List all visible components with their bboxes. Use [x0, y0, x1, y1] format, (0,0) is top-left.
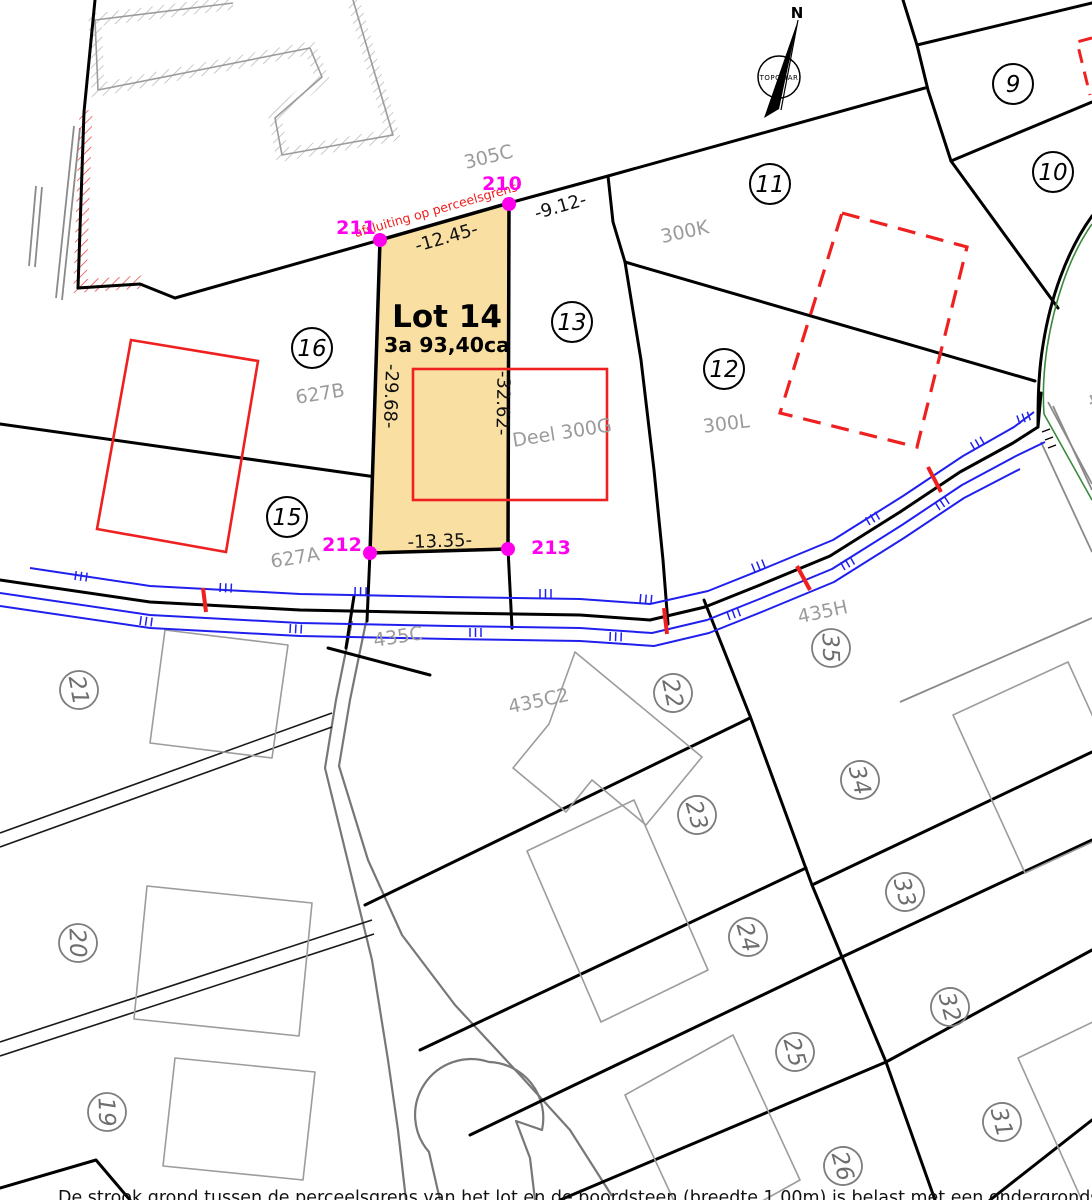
red-overlays	[97, 38, 1092, 552]
survey-point-212	[363, 546, 377, 560]
parcel-number: 20	[63, 928, 90, 958]
parcel-number: 12	[709, 357, 738, 383]
building-21	[150, 630, 288, 758]
parcel-9-10-boundary	[951, 102, 1092, 161]
parcel-35-34-boundary	[900, 618, 1092, 702]
building-34	[953, 662, 1092, 873]
lot-14: Lot 14 3a 93,40ca -12.45- -9.12- -29.68-…	[322, 173, 589, 560]
parcel-label-435c: 435C	[372, 622, 424, 651]
parcel-badge-32: 32	[927, 984, 974, 1031]
parcel-badge-9: 9	[993, 64, 1033, 104]
parcel-badge-13: 13	[552, 302, 592, 342]
parcel-badge-26: 26	[820, 1143, 867, 1190]
parcel-badge-10: 10	[1033, 152, 1073, 192]
survey-point-label-210: 210	[482, 173, 522, 195]
parcel-badge-21: 21	[57, 668, 101, 712]
parcel-badge-20: 20	[58, 923, 97, 962]
parcel-label-435h: 435H	[796, 596, 850, 628]
plan-svg: Lot 14 3a 93,40ca -12.45- -9.12- -29.68-…	[0, 0, 1092, 1200]
left-road-edge	[35, 187, 42, 267]
main-diagonal-boundary	[175, 88, 925, 298]
survey-point-label-211: 211	[336, 217, 376, 239]
parcel-badge-23: 23	[674, 792, 721, 839]
fence-ticks	[470, 628, 481, 637]
right-road-edge	[1041, 442, 1092, 552]
parcel-21-20-boundary	[0, 713, 332, 847]
parcel-number: 34	[843, 763, 876, 798]
fence-ticks	[140, 616, 152, 626]
parcel-badge-31: 31	[979, 1099, 1026, 1146]
culdesac-curve	[1038, 216, 1092, 427]
north-compass: N TOPOMAR	[758, 4, 803, 118]
parcel-number: 13	[557, 310, 586, 336]
parcel-label-300l: 300L	[702, 410, 752, 438]
parcel-badge-15: 15	[267, 497, 307, 537]
parcel-number: 15	[272, 505, 301, 531]
parcel-number: 16	[297, 336, 326, 362]
building-23	[527, 800, 708, 1022]
parcel-number: 25	[778, 1035, 811, 1070]
parcel-label-deel-300g: Deel 300G	[511, 414, 614, 451]
survey-point-label-212: 212	[322, 534, 362, 556]
parcel-badge-16: 16	[292, 328, 332, 368]
parcel-number: 10	[1038, 160, 1067, 186]
survey-point-label-213: 213	[531, 537, 571, 559]
lot-area: 3a 93,40ca	[384, 333, 510, 357]
red-rect-left	[97, 340, 258, 552]
culdesac-green-line	[1043, 224, 1092, 500]
parcel-boundaries	[0, 0, 1092, 1200]
parcel-badge-35: 35	[811, 628, 850, 667]
compass-maker: TOPOMAR	[759, 74, 799, 82]
fence-ticks	[290, 624, 301, 634]
parcel-11-12-boundary	[625, 262, 1035, 381]
red-road-tick	[203, 588, 206, 612]
parcel-number: 32	[933, 990, 966, 1025]
parcel-20-19-boundary	[0, 920, 374, 1056]
dimension-bottom: -13.35-	[407, 530, 472, 553]
building-hatch-band	[95, 0, 393, 155]
parcel-13-11-boundary	[608, 176, 668, 624]
parcel-label-300k: 300K	[659, 216, 712, 248]
footer-note: De strook grond tussen de perceelsgrens …	[58, 1188, 1092, 1200]
left-road-edge	[29, 186, 36, 266]
building-25	[625, 1035, 800, 1200]
parcel-number: 22	[656, 676, 688, 710]
parcel-label-627b: 627B	[294, 379, 346, 408]
parcel-16-15-boundary	[0, 424, 376, 477]
boundary-line	[903, 0, 951, 161]
red-dashed-rect-12	[780, 213, 967, 447]
parcel-badge-12: 12	[704, 349, 744, 389]
parcel-label-435c2: 435C2	[506, 684, 571, 718]
parcel-badge-34: 34	[837, 757, 884, 804]
fence-ticks	[540, 589, 551, 598]
parcel-badge-25: 25	[772, 1029, 819, 1076]
parcel-badge-33: 33	[882, 869, 929, 916]
lot-name: Lot 14	[392, 299, 502, 335]
road-blue-lower-1	[0, 442, 1045, 633]
boundary-line	[508, 549, 512, 628]
parcel-label-627a: 627A	[269, 543, 321, 572]
parcel-number: 23	[680, 798, 713, 833]
red-hatch-strip	[80, 110, 143, 286]
parcel-33-32-boundary	[842, 840, 1092, 957]
north-label: N	[791, 4, 804, 22]
parcel-number: 21	[63, 673, 94, 706]
dimension-right: -32.62-	[491, 371, 513, 436]
parcel-badge-24: 24	[725, 914, 772, 961]
parcel-number: 9	[1006, 72, 1021, 98]
hatched-building	[95, 0, 393, 155]
survey-point-213	[501, 542, 515, 556]
parcel-badge-11: 11	[750, 164, 790, 204]
edge-fragment-label: 4	[1082, 388, 1092, 409]
driveway	[325, 621, 612, 1200]
fence-ticks	[1017, 412, 1030, 424]
parcel-23-24-boundary	[420, 868, 806, 1050]
compass-needle	[764, 20, 798, 118]
parcel-number: 33	[888, 875, 921, 910]
parcel-number: 19	[92, 1097, 119, 1127]
parcel-number: 24	[731, 920, 764, 955]
parcel-number: 31	[985, 1105, 1018, 1140]
parcel-number: 11	[755, 172, 784, 198]
driveway-west-edge	[325, 621, 406, 1200]
parcel-number: 26	[826, 1149, 859, 1184]
dimension-left: -29.68-	[379, 364, 402, 429]
parcel-badge-22: 22	[650, 670, 695, 715]
fence-ticks	[610, 632, 621, 641]
parcel-32-31-boundary	[886, 950, 1092, 1062]
parcel-badge-19: 19	[87, 1092, 126, 1131]
building-20	[134, 886, 312, 1036]
cadastral-plan: Lot 14 3a 93,40ca -12.45- -9.12- -29.68-…	[0, 0, 1092, 1200]
parcel-9-top-boundary	[917, 3, 1092, 45]
road-blue-lower-2	[0, 469, 1020, 646]
survey-point-210	[502, 197, 516, 211]
parcel-number: 35	[816, 633, 843, 663]
buildings	[134, 630, 1092, 1200]
building-19	[163, 1058, 315, 1180]
red-dashed-fragment	[1077, 38, 1092, 95]
parcel-label-305c: 305C	[462, 141, 515, 174]
right-road-edge	[1053, 406, 1092, 490]
driveway-east-edge	[339, 622, 612, 1196]
